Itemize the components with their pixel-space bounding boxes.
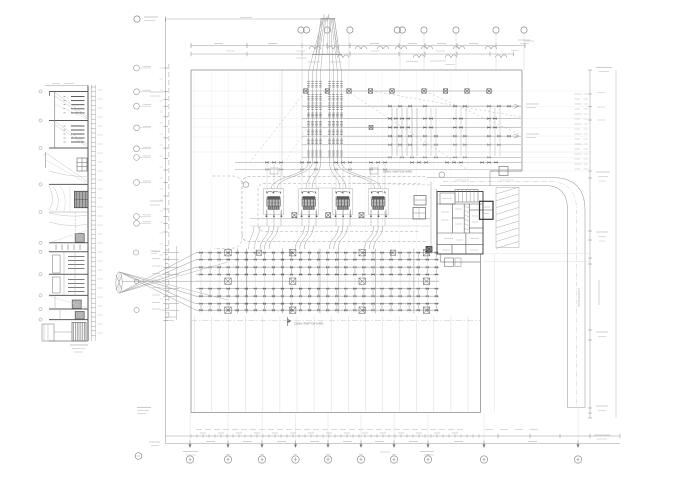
svg-text:220kV SWITCHYARD: 220kV SWITCHYARD bbox=[294, 322, 324, 326]
svg-text:230kV SWITCHYARD: 230kV SWITCHYARD bbox=[383, 169, 413, 173]
svg-text:ACCESS ROAD: ACCESS ROAD bbox=[577, 288, 581, 307]
